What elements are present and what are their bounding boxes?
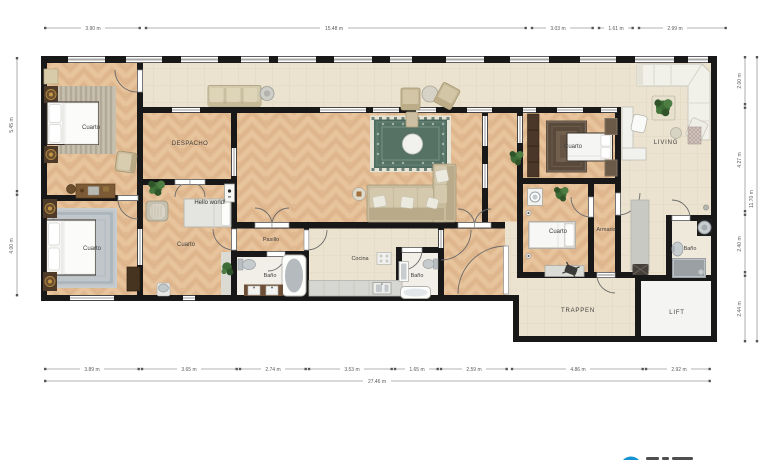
svg-text:11.70 m: 11.70 m (749, 190, 755, 208)
svg-text:Baño: Baño (264, 273, 277, 279)
svg-text:DESPACHO: DESPACHO (172, 141, 208, 147)
svg-text:3.90 m: 3.90 m (85, 26, 100, 32)
svg-text:27.46 m: 27.46 m (368, 379, 386, 385)
svg-text:2.92 m: 2.92 m (671, 367, 686, 373)
svg-text:2.74 m: 2.74 m (265, 367, 280, 373)
svg-text:1.61 m: 1.61 m (608, 26, 623, 32)
svg-text:2.44 m: 2.44 m (737, 301, 743, 316)
svg-text:2.59 m: 2.59 m (466, 367, 481, 373)
svg-text:Armario: Armario (596, 227, 615, 233)
svg-text:Baño: Baño (684, 246, 697, 252)
svg-text:Cuarto: Cuarto (564, 144, 583, 150)
svg-text:3.89 m: 3.89 m (84, 367, 99, 373)
svg-text:5.45 m: 5.45 m (9, 117, 15, 132)
svg-text:LIVING: LIVING (654, 140, 678, 146)
svg-text:Hello world!: Hello world! (194, 200, 226, 206)
svg-text:Baño: Baño (411, 273, 424, 279)
svg-text:Cuarto: Cuarto (83, 246, 102, 252)
svg-text:1.65 m: 1.65 m (409, 367, 424, 373)
svg-text:Cocina: Cocina (351, 256, 369, 262)
svg-text:15.48 m: 15.48 m (325, 26, 343, 32)
svg-text:Cuarto: Cuarto (177, 242, 196, 248)
svg-text:2.00 m: 2.00 m (737, 73, 743, 88)
svg-text:2.40 m: 2.40 m (737, 236, 743, 251)
svg-text:4.86 m: 4.86 m (570, 367, 585, 373)
svg-text:Pasillo: Pasillo (263, 237, 279, 243)
svg-text:3.03 m: 3.03 m (550, 26, 565, 32)
svg-text:TRAPPEN: TRAPPEN (561, 308, 595, 314)
svg-text:4.27 m: 4.27 m (737, 152, 743, 167)
svg-text:3.65 m: 3.65 m (181, 367, 196, 373)
svg-text:Cuarto: Cuarto (82, 125, 101, 131)
svg-text:2.99 m: 2.99 m (667, 26, 682, 32)
svg-text:LIFT: LIFT (669, 310, 685, 316)
svg-text:4.00 m: 4.00 m (9, 238, 15, 253)
svg-text:3.53 m: 3.53 m (344, 367, 359, 373)
svg-text:Cuarto: Cuarto (549, 229, 568, 235)
